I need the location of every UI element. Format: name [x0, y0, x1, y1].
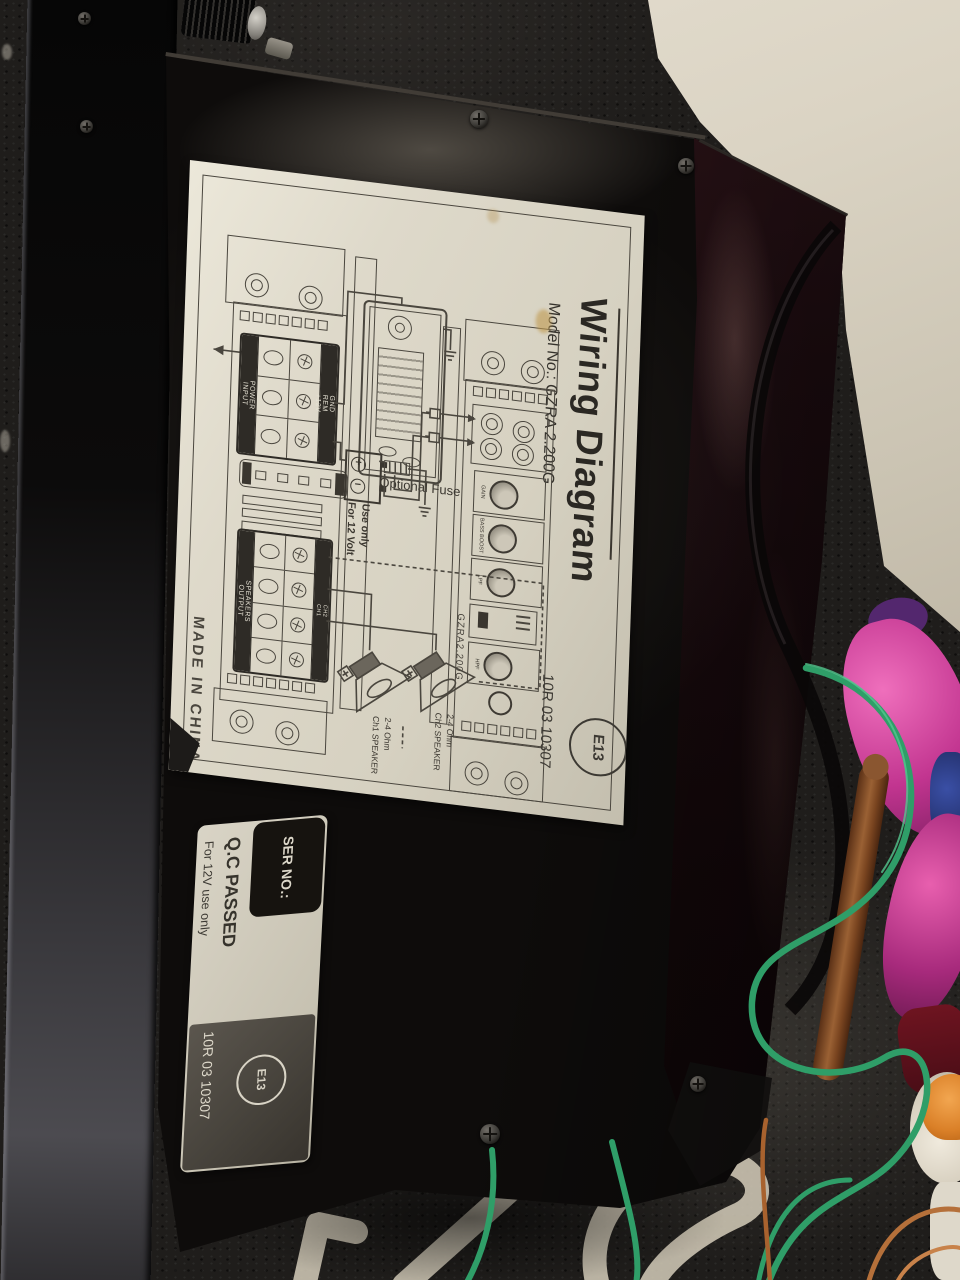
approval-number: 10R 03 10307	[197, 1031, 218, 1121]
screw	[678, 158, 694, 174]
screw	[470, 110, 488, 128]
speaker2-label: Ch2 SPEAKER 2-4 Ohm	[432, 712, 456, 773]
speaker1-label: Ch1 SPEAKER 2-4 Ohm	[369, 716, 393, 777]
white-fabric	[930, 1182, 960, 1280]
use-note-text: For 12V use only	[197, 840, 216, 936]
e13-mark: E13	[235, 1052, 288, 1107]
diagram-wires	[169, 160, 645, 825]
serial-number-box: SER NO.:	[249, 817, 326, 918]
approval-number: 10R 03 10307	[536, 673, 556, 769]
wiring-diagram-label: Wiring Diagram Model No.: GZRA 2.200G PO…	[169, 160, 645, 825]
qc-passed-text: Q.C PASSED	[217, 836, 244, 948]
speaker1-drawing	[332, 641, 410, 711]
qc-sticker: SER NO.: Q.C PASSED For 12V use only 10R…	[180, 815, 328, 1174]
screw	[690, 1076, 706, 1092]
approval-box: 10R 03 10307 E13	[182, 1014, 315, 1171]
screw	[480, 1124, 500, 1144]
photo-scene: Wiring Diagram Model No.: GZRA 2.200G PO…	[0, 0, 960, 1280]
